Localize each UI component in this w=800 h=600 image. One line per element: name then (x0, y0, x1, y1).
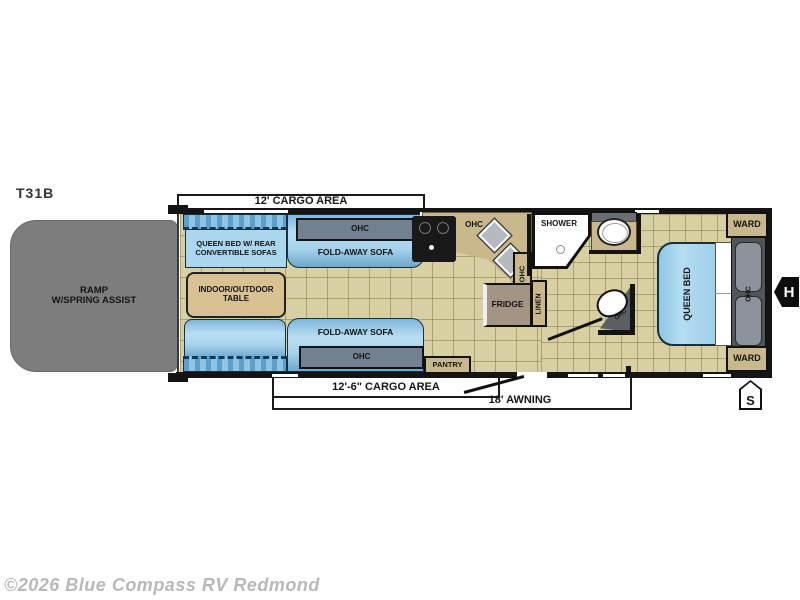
stove-burner-right (437, 222, 449, 234)
fold-away-sofa-top-label-wrap: FOLD-AWAY SOFA (287, 241, 424, 265)
sofa-bottom-left (184, 319, 286, 359)
step-marker-face: S (741, 382, 760, 408)
sofa-back-top (183, 214, 287, 230)
wall-left-ramp-opening (177, 212, 179, 372)
wardrobe-top: WARD (726, 212, 768, 238)
window-bottom-kitchen (568, 374, 598, 377)
awning-bracket-right (630, 378, 632, 410)
queen-bed-sofas-label: QUEEN BED W/ REAR CONVERTIBLE SOFAS (195, 240, 276, 256)
cargo-bottom-bracket-left (272, 378, 274, 398)
watermark: ©2026 Blue Compass RV Redmond (4, 575, 320, 596)
page-title: T31B (16, 185, 54, 201)
ohc-sink-label: OHC (518, 266, 527, 283)
ohc-headboard-label: OHC (746, 286, 753, 302)
cargo-top-label: 12' CARGO AREA (201, 196, 401, 208)
shower-drain-icon (556, 245, 565, 254)
cargo-top-bracket-right (423, 194, 425, 210)
pillow-bottom (735, 296, 762, 346)
fold-away-sofa-top-label: FOLD-AWAY SOFA (318, 248, 394, 257)
ohc-bottom-label: OHC (353, 353, 371, 362)
ohc-top: OHC (296, 218, 424, 241)
vanity-sink-inner-ring (602, 223, 628, 243)
wall-kitchen-bath (527, 214, 531, 276)
fridge-label: FRIDGE (491, 300, 523, 309)
fold-away-sofa-bottom-label: FOLD-AWAY SOFA (318, 328, 394, 337)
wardrobe-bottom-label: WARD (733, 354, 761, 364)
linen-label: LINEN (536, 294, 543, 315)
cargo-top-bracket-left (177, 194, 179, 210)
hitch-marker: H (774, 277, 799, 307)
table-label: INDOOR/OUTDOOR TABLE (198, 286, 273, 303)
pantry-label: PANTRY (433, 361, 463, 369)
bath-wall-horizontal (589, 250, 641, 254)
floorplan-canvas: T31B RAMP W/SPRING ASSIST QUEEN BED W/ R… (0, 0, 800, 600)
sofa-back-bottom (183, 356, 287, 372)
toilet-wall-horizontal (598, 330, 635, 335)
window-top-garage (204, 210, 288, 213)
ohc-bottom: OHC (299, 346, 424, 369)
stove-burner-left (419, 222, 431, 234)
awning-label: 18' AWNING (440, 395, 600, 407)
queen-bed-sofas: QUEEN BED W/ REAR CONVERTIBLE SOFAS (185, 229, 287, 268)
ramp-label: RAMP W/SPRING ASSIST (52, 286, 137, 307)
ramp-hinge-bottom (168, 373, 188, 382)
fridge-label-wrap: FRIDGE (483, 283, 532, 327)
window-bottom-bath (603, 374, 625, 377)
ramp-area: RAMP W/SPRING ASSIST (10, 220, 178, 372)
window-bottom-garage (272, 374, 298, 377)
wardrobe-top-label: WARD (733, 220, 761, 230)
wardrobe-bottom: WARD (726, 346, 768, 372)
step-marker-label: S (746, 394, 755, 408)
awning-bracket-line (272, 408, 632, 410)
pillow-top (735, 242, 762, 292)
stove-knob (429, 245, 434, 250)
queen-bed-label: QUEEN BED (682, 267, 692, 321)
door-frame-stub (626, 366, 631, 374)
window-top-bedroom (635, 210, 659, 213)
indoor-outdoor-table: INDOOR/OUTDOOR TABLE (186, 272, 286, 318)
shower-label: SHOWER (532, 220, 586, 229)
step-marker: S (739, 380, 762, 410)
toilet-wall-vertical (630, 284, 635, 334)
window-bottom-bedroom (703, 374, 731, 377)
bath-wall-vertical (637, 214, 641, 254)
stove (412, 216, 456, 262)
pantry: PANTRY (424, 356, 471, 374)
fold-away-sofa-bottom-label-wrap: FOLD-AWAY SOFA (287, 322, 424, 344)
wall-bottom (176, 372, 766, 378)
cargo-bottom-label: 12'-6" CARGO AREA (280, 382, 492, 394)
hitch-marker-label: H (784, 284, 795, 301)
ohc-top-label: OHC (351, 225, 369, 234)
